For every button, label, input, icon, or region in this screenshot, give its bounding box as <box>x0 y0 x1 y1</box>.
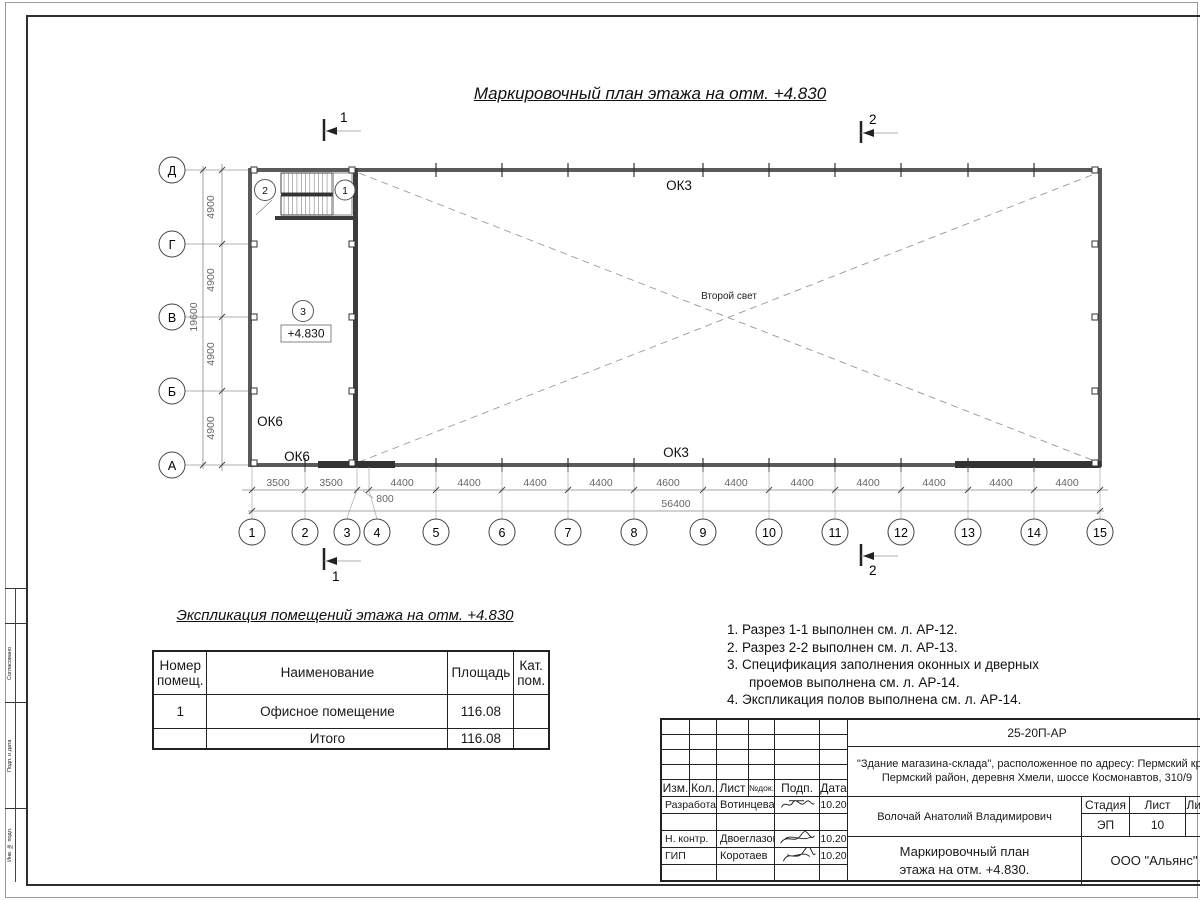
wall-ticks <box>305 163 1034 472</box>
chief-name: Волочай Анатолий Владимирович <box>848 797 1082 837</box>
rev-cell <box>717 765 749 780</box>
explication-title: Экспликация помещений этажа на отм. +4.8… <box>152 607 538 624</box>
sheet-label: Лист <box>1130 797 1186 814</box>
section-1-bottom: 1 <box>324 548 361 584</box>
col-axis-14: 14 <box>1027 526 1041 540</box>
col-axis-1: 1 <box>249 526 256 540</box>
floor-plan: Второй свет <box>0 0 1200 600</box>
drawing-title: Маркировочный план этажа на отм. +4.830. <box>848 837 1082 884</box>
section-1-top: 1 <box>324 110 361 141</box>
rev-cell <box>775 750 820 765</box>
col-axis-9: 9 <box>700 526 707 540</box>
total-label-cell: Итого <box>207 728 448 749</box>
dim-b-2: 3500 <box>319 477 343 489</box>
drawing-sheet: { "plan": { "title": "Маркировочный план… <box>0 0 1200 900</box>
developed-signature <box>775 797 820 814</box>
gip-name: Коротаев <box>717 848 775 865</box>
project-line-2: Пермский район, деревня Хмели, шоссе Кос… <box>882 772 1192 786</box>
room-number-bubble: 3 <box>300 306 306 318</box>
ok6-wall-label: ОК6 <box>257 414 283 429</box>
drawing-title-line-1: Маркировочный план <box>900 843 1030 861</box>
rev-cell <box>775 735 820 750</box>
explication-header-row: Номер помещ. Наименование Площадь Кат. п… <box>153 651 549 694</box>
rev-cell <box>717 750 749 765</box>
row-axis-d: Д <box>168 164 177 178</box>
col-axis-bubbles: 1 2 3 4 5 6 7 8 9 10 11 12 13 14 15 <box>239 519 1113 545</box>
blank-name-cell <box>717 865 775 880</box>
sheet-number: 10 <box>1130 814 1186 837</box>
note-3-continued: проемов выполнена см. л. АР-14. <box>727 674 1039 692</box>
blank-date-cell <box>820 865 848 880</box>
rev-cell <box>775 720 820 735</box>
rev-cell <box>662 765 690 780</box>
gip-role: ГИП <box>662 848 717 865</box>
developed-role: Разработал <box>662 797 717 814</box>
ok3-bottom-label: ОК3 <box>663 445 689 460</box>
dim-left-total: 19600 <box>188 302 200 331</box>
col-axis-8: 8 <box>631 526 638 540</box>
col-axis-4: 4 <box>374 526 381 540</box>
ok6-bottom-label: ОК6 <box>284 449 310 464</box>
rev-cell <box>775 765 820 780</box>
stair-node-2: 2 <box>262 185 268 197</box>
section-2-bottom-label: 2 <box>869 563 877 578</box>
room-cat-cell <box>514 694 549 728</box>
dim-left-3: 4900 <box>205 342 217 366</box>
rev-cell <box>662 735 690 750</box>
dim-b-4: 4400 <box>457 477 481 489</box>
rev-cell <box>820 765 848 780</box>
dim-left-4: 4900 <box>205 416 217 440</box>
developed-name: Вотинцева <box>717 797 775 814</box>
note-1: 1. Разрез 1-1 выполнен см. л. АР-12. <box>727 621 1039 639</box>
col-axis-12: 12 <box>894 526 908 540</box>
ncontr-name: Двоеглазов <box>717 831 775 848</box>
section-marks: 1 2 1 2 <box>324 110 898 584</box>
col-header-area: Площадь <box>448 651 514 694</box>
col-axis-2: 2 <box>302 526 309 540</box>
doc-code: 25-20П-АР <box>848 720 1200 747</box>
note-2: 2. Разрез 2-2 выполнен см. л. АР-13. <box>727 639 1039 657</box>
stage-label: Стадия <box>1082 797 1130 814</box>
rev-cell <box>690 750 717 765</box>
dim-b-12: 4400 <box>989 477 1013 489</box>
margin-label-inv: Инв. № подл. <box>5 809 15 881</box>
drawing-title-line-2: этажа на отм. +4.830. <box>900 861 1030 879</box>
blank-date-cell <box>820 814 848 831</box>
stamp-header-data: Дата <box>820 780 848 797</box>
dimension-left: 4900 4900 4900 4900 19600 <box>188 164 225 471</box>
developed-date: 10.20 <box>820 797 848 814</box>
rev-cell <box>749 765 775 780</box>
margin-label-approved: Согласовано <box>5 624 15 702</box>
col-header-number: Номер помещ. <box>153 651 207 694</box>
explication-row: 1 Офисное помещение 116.08 <box>153 694 549 728</box>
level-mark: +4.830 <box>287 327 324 341</box>
stamp-header-podp: Подп. <box>775 780 820 797</box>
col-axis-13: 13 <box>961 526 975 540</box>
stamp-header-list: Лист <box>717 780 749 797</box>
rev-cell <box>820 720 848 735</box>
stamp-header-ndok: №док. <box>749 780 775 797</box>
dimension-bottom: 3500 3500 4400 4400 4400 4400 4600 4400 … <box>242 477 1108 514</box>
dim-b-8: 4400 <box>724 477 748 489</box>
margin-label-sign-date: Подп. и дата <box>5 703 15 808</box>
plan-labels: ОК3 ОК3 ОК6 ОК6 2 1 3 +4.830 <box>255 178 692 464</box>
sheets-label: Листов <box>1186 797 1200 814</box>
stair-node-1: 1 <box>342 185 348 197</box>
row-axis-b: Б <box>168 385 176 399</box>
explication-table: Номер помещ. Наименование Площадь Кат. п… <box>152 650 550 750</box>
rev-cell <box>662 750 690 765</box>
stamp-header-kol: Кол. <box>690 780 717 797</box>
signature-icon <box>775 831 819 847</box>
row-axis-g: Г <box>169 238 176 252</box>
section-2-top-label: 2 <box>869 112 877 127</box>
column-squares <box>251 167 1098 466</box>
dim-left-1: 4900 <box>205 195 217 219</box>
rev-cell <box>717 720 749 735</box>
rev-cell <box>717 735 749 750</box>
project-line-1: "Здание магазина-склада", расположенное … <box>857 758 1200 772</box>
rev-cell <box>749 735 775 750</box>
signature-icon <box>775 797 819 813</box>
section-1-top-label: 1 <box>340 110 348 125</box>
col-header-name: Наименование <box>207 651 448 694</box>
dim-left-2: 4900 <box>205 268 217 292</box>
row-axis-a: А <box>168 459 177 473</box>
dim-b-3: 4400 <box>390 477 414 489</box>
rev-cell <box>662 720 690 735</box>
col-axis-6: 6 <box>499 526 506 540</box>
title-block: Изм. Кол. Лист №док. Подп. Дата Разработ… <box>660 718 1200 882</box>
col-axis-11: 11 <box>829 526 842 540</box>
void-cross-dashed <box>359 173 1097 462</box>
gip-signature <box>775 848 820 865</box>
notes-list: 1. Разрез 1-1 выполнен см. л. АР-12. 2. … <box>727 621 1039 709</box>
dim-b-1: 3500 <box>266 477 290 489</box>
rev-cell <box>690 735 717 750</box>
section-1-bottom-label: 1 <box>332 569 340 584</box>
dim-b-11: 4400 <box>922 477 946 489</box>
blank-role-cell <box>662 814 717 831</box>
project-description: "Здание магазина-склада", расположенное … <box>848 747 1200 797</box>
blank-role-cell <box>662 865 717 880</box>
col-header-cat: Кат. пом. <box>514 651 549 694</box>
dim-b-small: 800 <box>376 493 394 505</box>
rev-cell <box>820 735 848 750</box>
dim-b-9: 4400 <box>790 477 814 489</box>
col-axis-10: 10 <box>762 526 776 540</box>
dim-b-5: 4400 <box>523 477 547 489</box>
dim-b-6: 4400 <box>589 477 613 489</box>
second-light-label: Второй свет <box>701 291 757 302</box>
walls <box>248 168 1102 468</box>
rev-cell <box>749 750 775 765</box>
signature-icon <box>775 848 819 864</box>
stamp-header-izm: Изм. <box>662 780 690 797</box>
ncontr-signature <box>775 831 820 848</box>
blank-sign-cell <box>775 865 820 880</box>
ncontr-date: 10.20 <box>820 831 848 848</box>
rev-cell <box>749 720 775 735</box>
ok3-top-label: ОК3 <box>666 178 692 193</box>
note-3: 3. Спецификация заполнения оконных и две… <box>727 656 1039 674</box>
dim-b-total: 56400 <box>661 498 690 510</box>
blank-sign-cell <box>775 814 820 831</box>
room-area-cell: 116.08 <box>448 694 514 728</box>
rev-cell <box>690 720 717 735</box>
rev-cell <box>690 765 717 780</box>
room-name-cell: Офисное помещение <box>207 694 448 728</box>
col-axis-3: 3 <box>344 526 351 540</box>
rev-cell <box>820 750 848 765</box>
total-area-cell: 116.08 <box>448 728 514 749</box>
blank-name-cell <box>717 814 775 831</box>
company-name: ООО "Альянс" <box>1082 837 1200 884</box>
explication-total-row: Итого 116.08 <box>153 728 549 749</box>
row-axis-v: В <box>168 311 176 325</box>
section-2-top: 2 <box>861 112 898 143</box>
total-cat-cell <box>514 728 549 749</box>
row-axis-bubbles: Д Г В Б А <box>159 157 185 478</box>
section-2-bottom: 2 <box>861 544 898 578</box>
door-swing <box>256 200 272 215</box>
col-axis-7: 7 <box>565 526 572 540</box>
dim-b-13: 4400 <box>1055 477 1079 489</box>
dim-b-10: 4400 <box>856 477 880 489</box>
col-axis-5: 5 <box>433 526 440 540</box>
dim-b-7: 4600 <box>656 477 680 489</box>
col-axis-15: 15 <box>1093 526 1107 540</box>
ncontr-role: Н. контр. <box>662 831 717 848</box>
stage-value: ЭП <box>1082 814 1130 837</box>
total-empty-cell <box>153 728 207 749</box>
margin-strip-divider <box>15 588 16 882</box>
room-number-cell: 1 <box>153 694 207 728</box>
gip-date: 10.20 <box>820 848 848 865</box>
note-4: 4. Экспликация полов выполнена см. л. АР… <box>727 691 1039 709</box>
sheets-value <box>1186 814 1200 837</box>
